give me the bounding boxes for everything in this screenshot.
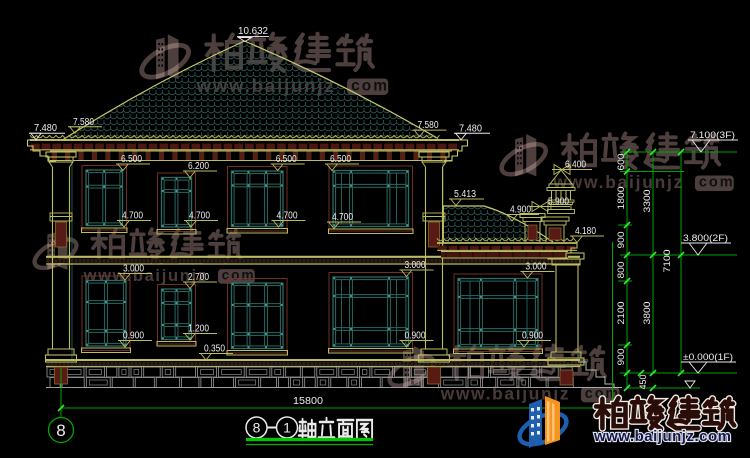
svg-text:4.700: 4.700 xyxy=(277,211,298,222)
svg-text:3.800(2F): 3.800(2F) xyxy=(683,233,728,243)
svg-text:com: com xyxy=(699,175,735,191)
svg-text:4.700: 4.700 xyxy=(122,211,143,222)
svg-text:3.000: 3.000 xyxy=(405,260,426,271)
svg-text:10.632: 10.632 xyxy=(238,26,268,37)
svg-text:8: 8 xyxy=(56,421,65,440)
svg-text:5.413: 5.413 xyxy=(454,189,476,200)
svg-text:7.580: 7.580 xyxy=(73,117,94,128)
svg-text:900: 900 xyxy=(616,231,626,248)
svg-text:0.900: 0.900 xyxy=(405,331,426,342)
svg-text:3300: 3300 xyxy=(642,189,652,212)
svg-text:3.000: 3.000 xyxy=(123,264,144,275)
svg-text:800: 800 xyxy=(616,261,626,278)
svg-text:±0.000(1F): ±0.000(1F) xyxy=(683,352,733,362)
svg-text:0.900: 0.900 xyxy=(522,331,543,342)
svg-text:3.000: 3.000 xyxy=(526,262,547,273)
svg-text:com: com xyxy=(351,77,389,94)
svg-text:600: 600 xyxy=(616,153,626,170)
svg-text:1.200: 1.200 xyxy=(188,324,209,335)
svg-text:7.580: 7.580 xyxy=(418,120,439,131)
svg-text:0.900: 0.900 xyxy=(123,331,144,342)
svg-text:8: 8 xyxy=(253,420,261,436)
svg-text:6.500: 6.500 xyxy=(121,154,142,165)
svg-text:2100: 2100 xyxy=(616,301,626,324)
svg-text:7100: 7100 xyxy=(662,249,672,272)
svg-text:www.baijunjz.com: www.baijunjz.com xyxy=(593,428,731,445)
svg-text:6.200: 6.200 xyxy=(188,161,209,172)
svg-text:7.480: 7.480 xyxy=(459,123,482,134)
svg-text:6.400: 6.400 xyxy=(565,160,586,171)
svg-text:0.350: 0.350 xyxy=(204,344,225,355)
svg-text:4.900: 4.900 xyxy=(510,205,531,216)
svg-text:2.700: 2.700 xyxy=(188,272,209,283)
svg-text:7.100(3F): 7.100(3F) xyxy=(690,130,735,140)
svg-text:6.500: 6.500 xyxy=(330,154,351,165)
svg-text:5.900: 5.900 xyxy=(548,197,569,208)
svg-text:15800: 15800 xyxy=(293,396,323,407)
svg-text:6.500: 6.500 xyxy=(276,154,297,165)
svg-text:4.180: 4.180 xyxy=(575,226,596,237)
svg-text:7.480: 7.480 xyxy=(34,123,57,134)
svg-text:1: 1 xyxy=(283,420,291,436)
svg-text:3800: 3800 xyxy=(642,301,652,324)
svg-text:4.700: 4.700 xyxy=(332,212,353,223)
svg-text:900: 900 xyxy=(616,348,626,365)
svg-text:com: com xyxy=(222,268,256,283)
svg-text:4.700: 4.700 xyxy=(189,211,210,222)
svg-text:1800: 1800 xyxy=(616,186,626,209)
svg-text:450: 450 xyxy=(638,374,648,389)
